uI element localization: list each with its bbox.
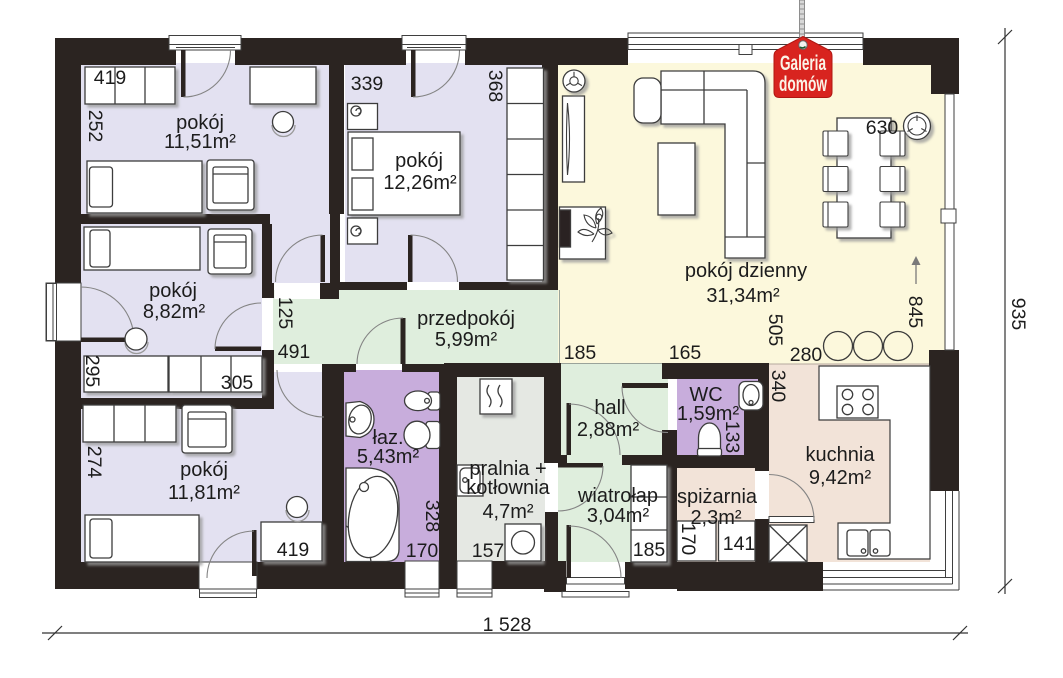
svg-text:3,04m²: 3,04m² xyxy=(587,505,650,527)
svg-text:170: 170 xyxy=(677,523,699,556)
svg-text:630: 630 xyxy=(866,117,899,139)
svg-text:pokój: pokój xyxy=(180,459,228,481)
svg-text:328: 328 xyxy=(421,500,443,533)
svg-text:Galeria: Galeria xyxy=(780,52,826,75)
svg-text:4,7m²: 4,7m² xyxy=(482,501,533,523)
svg-text:419: 419 xyxy=(94,67,127,89)
svg-text:845: 845 xyxy=(904,296,926,329)
svg-text:domów: domów xyxy=(779,73,827,96)
svg-text:340: 340 xyxy=(767,370,789,403)
svg-text:141: 141 xyxy=(723,533,756,555)
svg-text:295: 295 xyxy=(81,355,103,388)
svg-text:kotłownia: kotłownia xyxy=(466,477,550,499)
svg-text:491: 491 xyxy=(278,341,311,363)
svg-text:11,81m²: 11,81m² xyxy=(168,482,240,504)
svg-text:pokój: pokój xyxy=(149,280,197,302)
svg-text:368: 368 xyxy=(484,70,506,103)
svg-text:165: 165 xyxy=(669,342,702,364)
svg-text:kuchnia: kuchnia xyxy=(806,444,876,466)
svg-text:11,51m²: 11,51m² xyxy=(164,131,236,153)
svg-text:252: 252 xyxy=(84,110,106,143)
svg-text:wiatrołap: wiatrołap xyxy=(577,485,658,507)
svg-text:280: 280 xyxy=(790,344,823,366)
svg-text:pokój dzienny: pokój dzienny xyxy=(685,260,807,282)
svg-text:305: 305 xyxy=(221,372,254,394)
svg-text:185: 185 xyxy=(633,539,666,561)
svg-text:125: 125 xyxy=(274,297,296,330)
svg-text:185: 185 xyxy=(564,342,597,364)
svg-text:8,82m²: 8,82m² xyxy=(143,301,206,323)
svg-text:2,88m²: 2,88m² xyxy=(577,419,640,441)
svg-text:505: 505 xyxy=(764,314,786,347)
svg-text:12,26m²: 12,26m² xyxy=(383,172,457,194)
svg-text:5,99m²: 5,99m² xyxy=(435,329,498,351)
svg-text:170: 170 xyxy=(406,540,439,562)
svg-text:spiżarnia: spiżarnia xyxy=(677,486,758,508)
svg-text:31,34m²: 31,34m² xyxy=(706,285,780,307)
svg-text:pokój: pokój xyxy=(395,150,443,172)
svg-text:339: 339 xyxy=(351,73,384,95)
svg-text:133: 133 xyxy=(721,421,743,454)
svg-text:9,42m²: 9,42m² xyxy=(809,467,872,489)
svg-text:5,43m²: 5,43m² xyxy=(357,446,420,468)
svg-text:274: 274 xyxy=(83,446,105,479)
svg-text:przedpokój: przedpokój xyxy=(417,308,515,330)
svg-text:157: 157 xyxy=(472,540,505,562)
svg-text:935: 935 xyxy=(1007,298,1029,331)
svg-text:hall: hall xyxy=(594,397,625,419)
svg-text:419: 419 xyxy=(277,539,310,561)
